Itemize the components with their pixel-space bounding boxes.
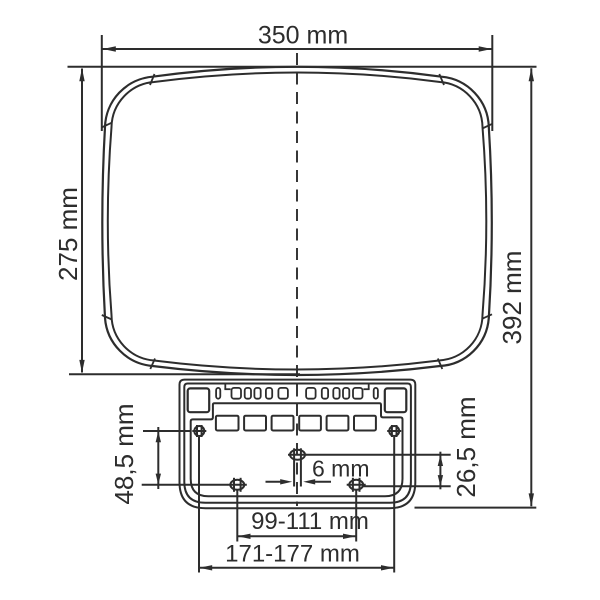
svg-text:99-111 mm: 99-111 mm xyxy=(251,508,369,535)
svg-text:6 mm: 6 mm xyxy=(312,456,370,482)
svg-text:275 mm: 275 mm xyxy=(53,187,83,281)
svg-text:48,5 mm: 48,5 mm xyxy=(109,403,139,504)
svg-text:26,5 mm: 26,5 mm xyxy=(451,396,481,497)
svg-text:392 mm: 392 mm xyxy=(497,251,527,345)
svg-text:350 mm: 350 mm xyxy=(258,22,348,50)
svg-text:171-177 mm: 171-177 mm xyxy=(225,541,360,568)
